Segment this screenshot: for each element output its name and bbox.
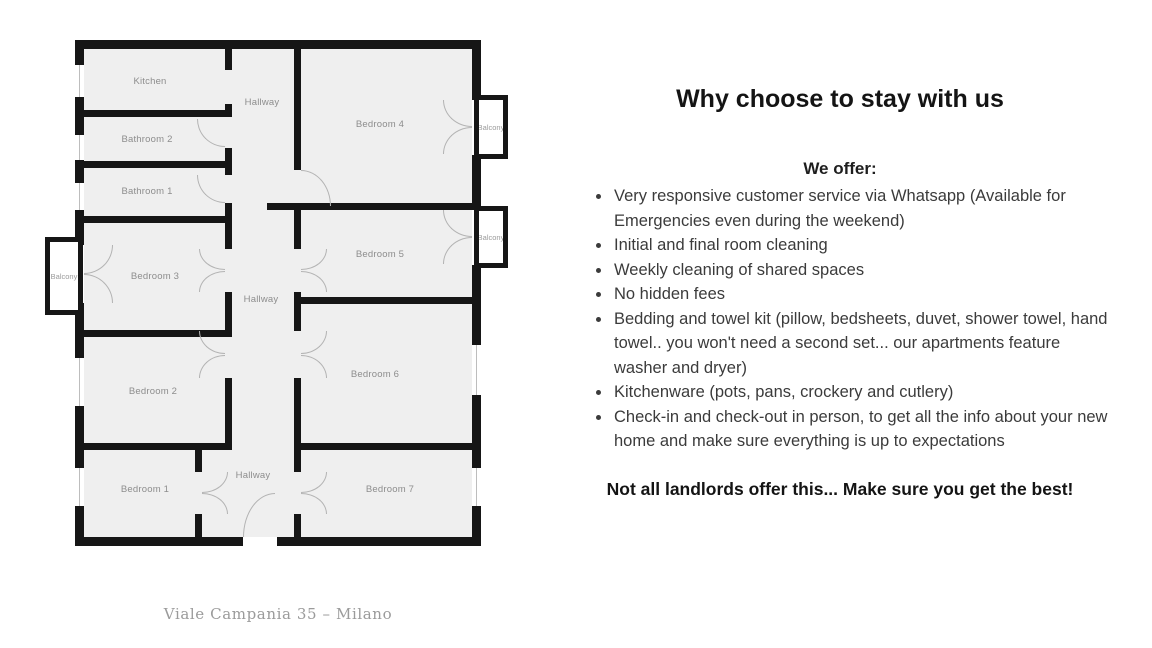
- wall: [294, 297, 472, 304]
- room-label-bedroom3: Bedroom 3: [105, 271, 205, 282]
- wall: [225, 49, 232, 70]
- door-arc-bedroom4: [301, 170, 331, 206]
- wall: [75, 161, 232, 168]
- wall: [195, 514, 202, 537]
- wall: [294, 514, 301, 537]
- wall: [294, 206, 301, 249]
- room-label-bedroom4: Bedroom 4: [330, 119, 430, 130]
- door-arc-balcony-top-right: [443, 127, 472, 154]
- door-arc-bedroom5: [301, 271, 327, 292]
- room-label-bathroom1: Bathroom 1: [97, 186, 197, 197]
- offer-item: Check-in and check-out in person, to get…: [612, 405, 1112, 454]
- window: [75, 65, 84, 97]
- offer-subtitle: We offer:: [568, 159, 1112, 179]
- offer-item: Initial and final room cleaning: [612, 233, 1112, 258]
- door-arc-bedroom3: [199, 249, 225, 270]
- balcony-mid-right: Balcony: [474, 206, 508, 268]
- offer-item: Bedding and towel kit (pillow, bedsheets…: [612, 307, 1112, 381]
- door-arc-balcony-mid-right: [443, 237, 472, 264]
- balcony-label: Balcony: [478, 233, 505, 242]
- entrance-opening: [243, 537, 277, 546]
- room-label-bedroom7: Bedroom 7: [340, 484, 440, 495]
- floor-plan: Balcony Balcony Balcony Kitchen Hallway …: [75, 40, 481, 546]
- wall: [294, 378, 301, 450]
- room-label-bedroom6: Bedroom 6: [325, 369, 425, 380]
- room-label-hallway-mid: Hallway: [226, 294, 296, 305]
- window: [472, 345, 481, 395]
- door-arc-bedroom6: [301, 331, 327, 354]
- wall: [75, 537, 481, 546]
- room-label-hallway-top: Hallway: [227, 97, 297, 108]
- room-label-bedroom2: Bedroom 2: [103, 386, 203, 397]
- footer-tagline: Not all landlords offer this... Make sur…: [568, 479, 1112, 500]
- marketing-copy: Why choose to stay with us We offer: Ver…: [568, 84, 1112, 500]
- door-arc-bathroom2: [197, 119, 225, 147]
- offer-list: Very responsive customer service via Wha…: [568, 184, 1112, 454]
- wall: [225, 378, 232, 450]
- door-arc-balcony-left: [84, 245, 113, 274]
- room-label-kitchen: Kitchen: [115, 76, 185, 87]
- door-arc-bedroom2: [199, 355, 225, 378]
- door-arc-balcony-mid-right: [443, 210, 472, 237]
- wall: [75, 110, 232, 117]
- page-title: Why choose to stay with us: [568, 84, 1112, 115]
- door-arc-bedroom6: [301, 355, 327, 378]
- offer-item: Weekly cleaning of shared spaces: [612, 258, 1112, 283]
- wall: [75, 40, 481, 49]
- door-arc-bedroom7: [301, 472, 327, 493]
- wall: [75, 443, 232, 450]
- room-label-hallway-bottom: Hallway: [218, 470, 288, 481]
- door-arc-entrance: [243, 493, 275, 537]
- door-arc-bedroom1: [202, 493, 228, 514]
- door-arc-bathroom1: [197, 175, 225, 203]
- room-label-bedroom1: Bedroom 1: [95, 484, 195, 495]
- door-arc-balcony-top-right: [443, 100, 472, 127]
- door-arc-bedroom2: [199, 331, 225, 354]
- balcony-top-right: Balcony: [474, 95, 508, 159]
- room-label-bedroom5: Bedroom 5: [330, 249, 430, 260]
- wall: [195, 450, 202, 472]
- window: [75, 468, 84, 506]
- balcony-label: Balcony: [51, 272, 78, 281]
- window: [75, 358, 84, 406]
- wall: [225, 203, 232, 249]
- balcony-left: Balcony: [45, 237, 83, 315]
- address-caption: Viale Campania 35 – Milano: [75, 605, 481, 623]
- wall: [225, 148, 232, 175]
- window: [75, 183, 84, 210]
- wall: [294, 450, 301, 472]
- window: [472, 468, 481, 506]
- room-label-bathroom2: Bathroom 2: [97, 134, 197, 145]
- door-arc-bedroom7: [301, 493, 327, 514]
- offer-item: No hidden fees: [612, 282, 1112, 307]
- wall: [75, 216, 232, 223]
- wall: [294, 443, 472, 450]
- balcony-label: Balcony: [478, 123, 505, 132]
- offer-item: Kitchenware (pots, pans, crockery and cu…: [612, 380, 1112, 405]
- offer-item: Very responsive customer service via Wha…: [612, 184, 1112, 233]
- door-arc-bedroom5: [301, 249, 327, 270]
- window: [75, 135, 84, 160]
- wall: [294, 49, 301, 170]
